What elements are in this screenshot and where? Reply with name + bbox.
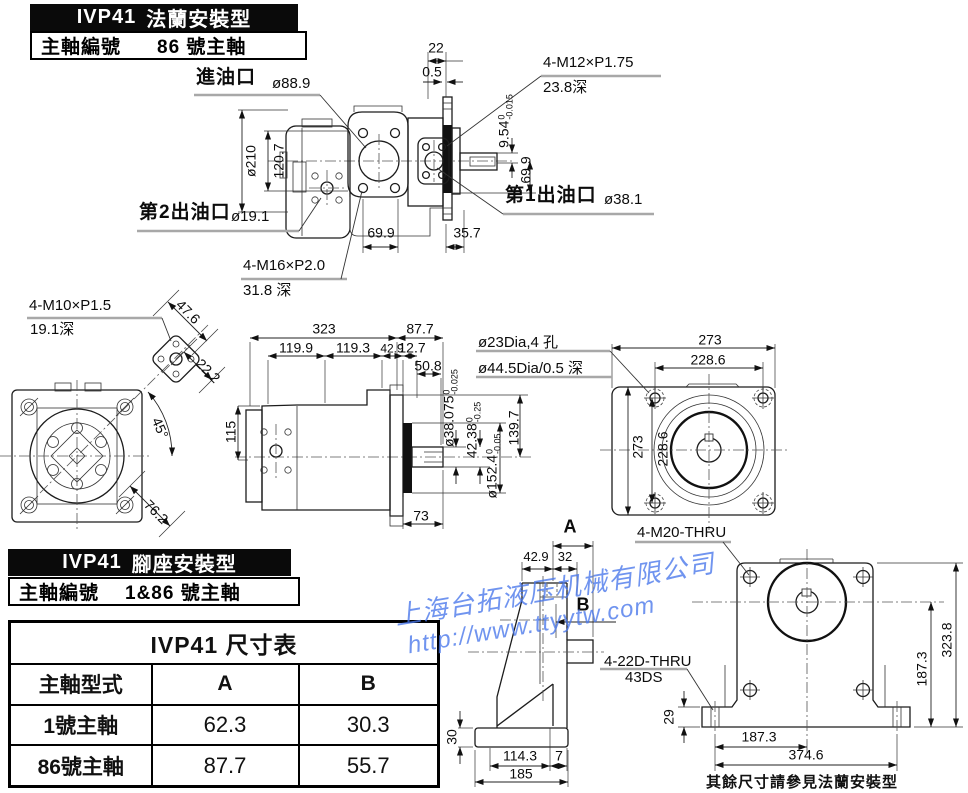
flange-spigot-spec: ø44.5Dia/0.5 深 xyxy=(478,361,583,377)
inlet-port-dia: ø88.9 xyxy=(272,76,310,92)
dim-114-3: 114.3 xyxy=(503,749,537,764)
dim-119-3: 119.3 xyxy=(336,341,370,356)
outlet2-label: 第2出油口 xyxy=(139,203,231,223)
dim-273-h: 273 xyxy=(698,333,721,348)
value-b: 30.3 xyxy=(299,705,439,746)
dim-69-9-right: 69.9 xyxy=(519,156,534,183)
dim-42-9-foot: 42.9 xyxy=(523,550,548,564)
dimension-table: IVP41 尺寸表 主軸型式 A B 1號主軸 62.3 30.3 86號主軸 … xyxy=(8,620,440,788)
dim-228-6-h: 228.6 xyxy=(690,353,725,368)
table-row: 86號主軸 87.7 55.7 xyxy=(10,745,439,786)
flange-shaft-value: 86 號主軸 xyxy=(157,32,246,59)
bolt-spec-m20: 4-M20-THRU xyxy=(637,525,726,541)
dim-30: 30 xyxy=(445,729,460,745)
bolt-spec-m12: 4-M12×P1.75 xyxy=(543,55,633,71)
row-label: 1號主軸 xyxy=(10,705,152,746)
reference-note: 其餘尺寸請參見法蘭安裝型 xyxy=(706,771,898,792)
value-a: 87.7 xyxy=(152,745,299,786)
dim-22: 22 xyxy=(428,41,444,56)
dim-139-7: 139.7 xyxy=(507,410,522,445)
dim-187-3-h: 187.3 xyxy=(741,730,776,745)
dim-32: 32 xyxy=(558,550,572,564)
table-header-row: 主軸型式 A B xyxy=(10,664,439,705)
table-title: IVP41 尺寸表 xyxy=(10,622,439,665)
dim-7: 7 xyxy=(555,749,563,764)
dim-9-54: 9.540-0.015 xyxy=(497,94,514,148)
outlet1-label: 第1出油口 xyxy=(505,186,597,206)
dim-12-7: 12.7 xyxy=(398,341,425,356)
foot-shaft-value: 1&86 號主軸 xyxy=(125,578,241,605)
dim-0-5: 0.5 xyxy=(422,65,441,80)
bolt-spec-m10: 4-M10×P1.5 xyxy=(29,298,111,314)
flange-holes-spec: ø23Dia,4 孔 xyxy=(478,335,558,351)
row-label: 86號主軸 xyxy=(10,745,152,786)
dim-38-075: ø38.0750-0.025 xyxy=(442,369,459,447)
dim-120-7: 120.7 xyxy=(272,143,287,178)
dim-35-7: 35.7 xyxy=(453,226,480,241)
dim-69-9-bottom: 69.9 xyxy=(367,226,394,241)
foot-header-title: IVP41 腳座安裝型 xyxy=(8,549,291,576)
dim-115: 115 xyxy=(224,421,239,443)
col-header-shaft-type: 主軸型式 xyxy=(10,664,152,705)
foot-hole-spec: 4-22D-THRU xyxy=(604,654,692,670)
dim-187-3-v: 187.3 xyxy=(915,651,930,686)
flange-header-model: IVP41 xyxy=(77,6,136,29)
dim-letter-b: B xyxy=(577,596,590,615)
outlet1-dia: ø38.1 xyxy=(604,192,642,208)
dim-73: 73 xyxy=(413,509,429,524)
dim-letter-a: A xyxy=(564,518,577,537)
foot-hole-code: 43DS xyxy=(625,670,663,686)
flange-header-shaft: 主軸編號 86 號主軸 xyxy=(30,31,307,60)
flange-shaft-label: 主軸編號 xyxy=(41,32,121,59)
dim-210: ø210 xyxy=(244,145,259,177)
foot-shaft-label: 主軸編號 xyxy=(19,578,99,605)
dim-50-8: 50.8 xyxy=(414,359,441,374)
outlet2-dia: ø19.1 xyxy=(231,209,269,225)
bolt-spec-m16: 4-M16×P2.0 xyxy=(243,258,325,274)
bolt-depth-m12: 23.8深 xyxy=(543,80,587,96)
dim-87-7: 87.7 xyxy=(406,322,433,337)
value-b: 55.7 xyxy=(299,745,439,786)
dim-323: 323 xyxy=(312,322,335,337)
foot-header-type: 腳座安裝型 xyxy=(132,548,237,577)
foot-header-shaft: 主軸編號 1&86 號主軸 xyxy=(8,577,300,606)
dim-29: 29 xyxy=(662,709,677,725)
dim-273-v: 273 xyxy=(631,435,646,458)
foot-side-view xyxy=(458,541,616,787)
bolt-depth-m16: 31.8 深 xyxy=(243,283,291,299)
value-a: 62.3 xyxy=(152,705,299,746)
col-header-b: B xyxy=(299,664,439,705)
dim-42-38: 42.380-0.25 xyxy=(465,402,482,459)
table-row: 1號主軸 62.3 30.3 xyxy=(10,705,439,746)
dim-228-6-v: 228.6 xyxy=(656,431,671,466)
dim-323-8: 323.8 xyxy=(940,622,955,657)
dim-185: 185 xyxy=(509,767,532,782)
datasheet-page: IVP41 法蘭安裝型 主軸編號 86 號主軸 IVP41 腳座安裝型 主軸編號… xyxy=(0,0,968,793)
col-header-a: A xyxy=(152,664,299,705)
bolt-depth-m10: 19.1深 xyxy=(30,322,74,338)
flange-header-type: 法蘭安裝型 xyxy=(146,3,251,32)
dim-119-9: 119.9 xyxy=(279,341,313,356)
dim-374-6: 374.6 xyxy=(788,748,823,763)
flange-header-title: IVP41 法蘭安裝型 xyxy=(30,4,298,31)
foot-header-model: IVP41 xyxy=(62,551,121,574)
dim-152-4: ø152.40-0.05 xyxy=(485,433,502,498)
inlet-port-label: 進油口 xyxy=(196,68,256,88)
